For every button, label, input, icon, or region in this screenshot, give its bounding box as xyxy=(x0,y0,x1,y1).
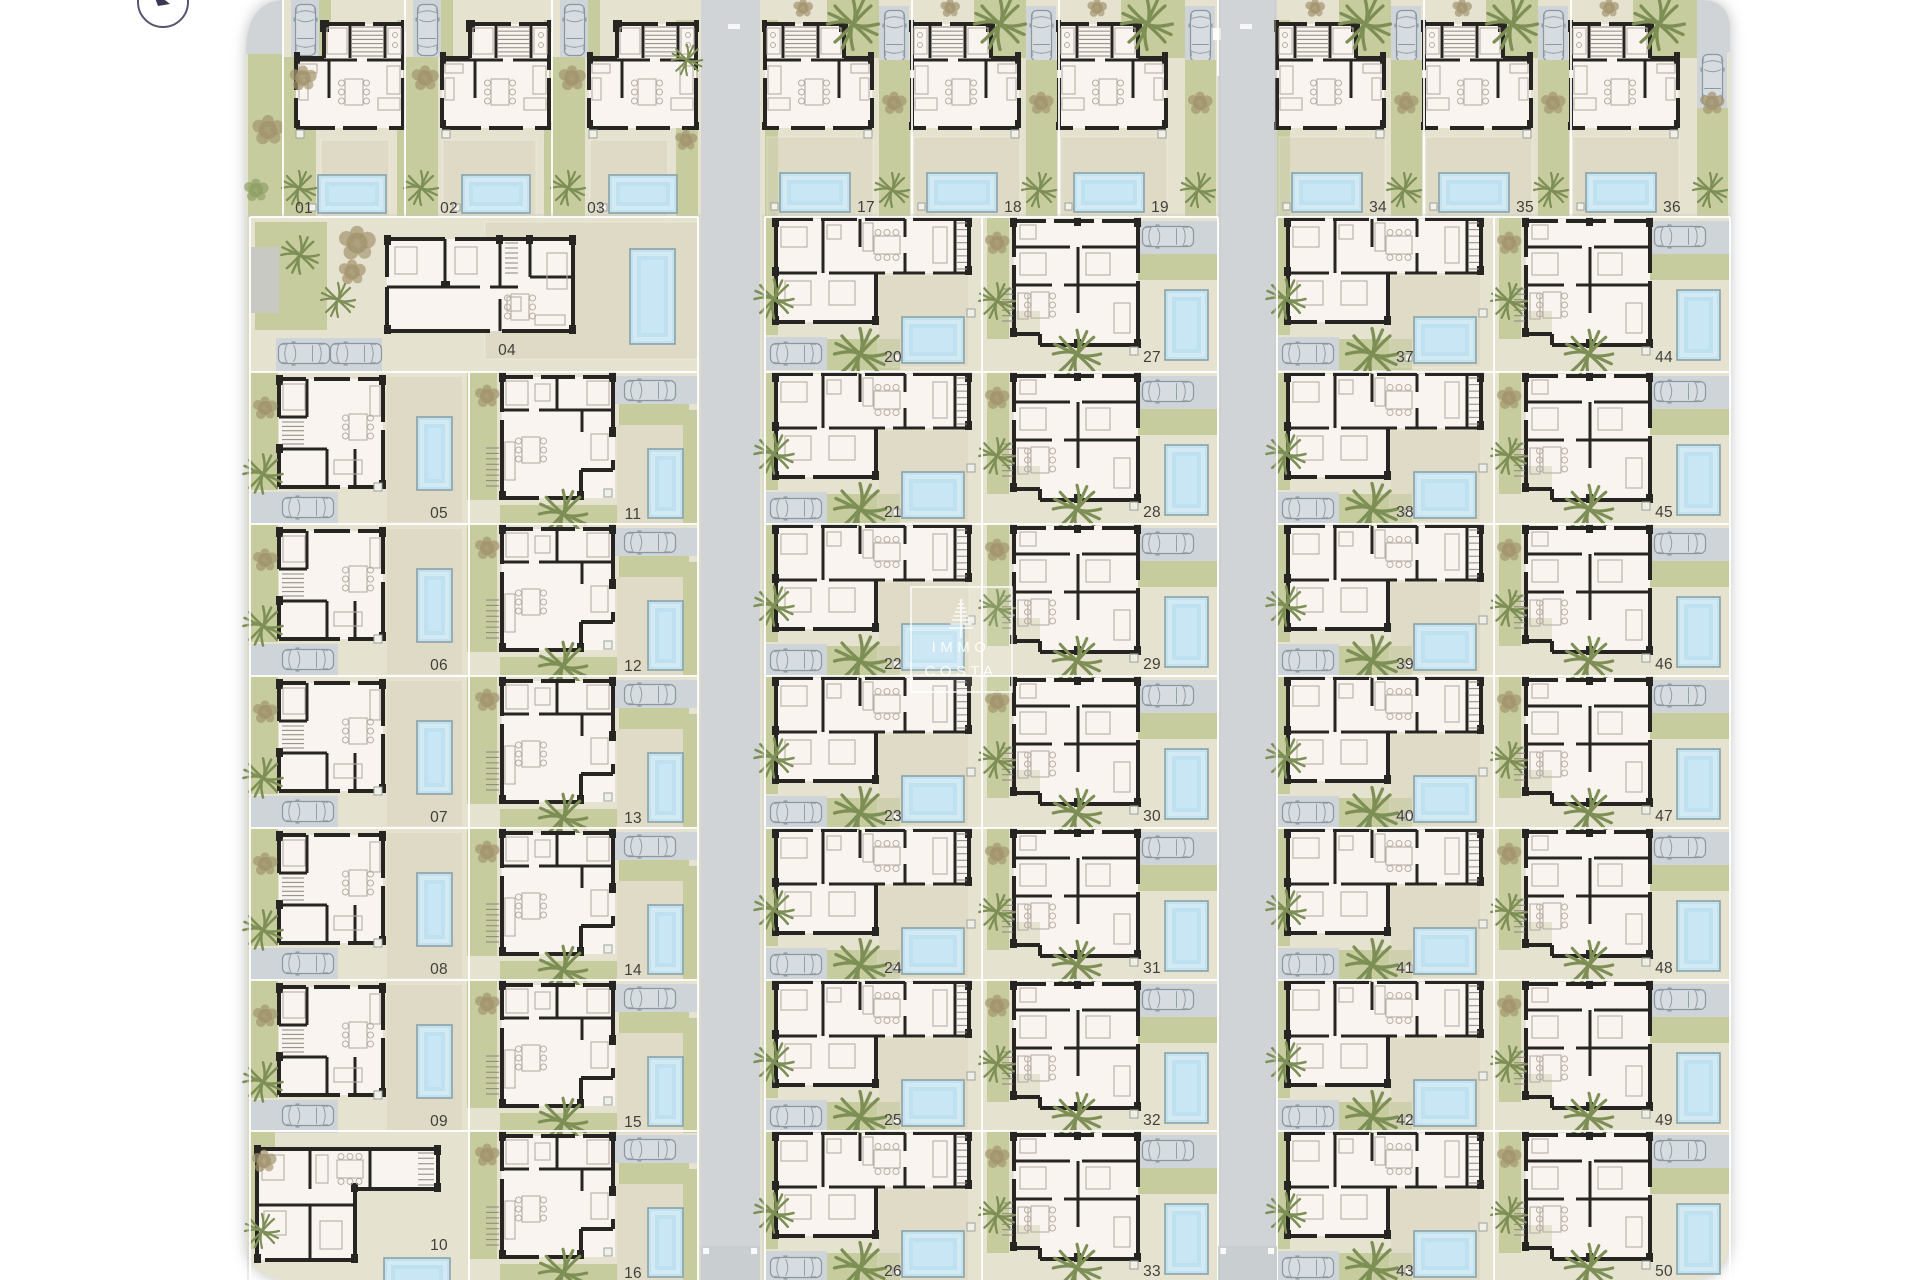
svg-text:21: 21 xyxy=(884,504,902,521)
svg-text:40: 40 xyxy=(1396,808,1414,825)
svg-text:39: 39 xyxy=(1396,656,1414,673)
svg-text:44: 44 xyxy=(1655,349,1673,366)
svg-text:IMMO: IMMO xyxy=(932,639,991,656)
svg-text:11: 11 xyxy=(625,506,642,523)
svg-text:19: 19 xyxy=(1151,199,1169,216)
svg-text:33: 33 xyxy=(1143,1263,1161,1280)
svg-text:04: 04 xyxy=(498,342,516,359)
svg-text:23: 23 xyxy=(884,808,902,825)
svg-text:01: 01 xyxy=(295,200,313,217)
svg-text:42: 42 xyxy=(1396,1112,1414,1129)
svg-text:49: 49 xyxy=(1655,1112,1673,1129)
svg-text:03: 03 xyxy=(587,200,605,217)
svg-text:COSTA: COSTA xyxy=(924,663,997,680)
svg-text:25: 25 xyxy=(884,1112,902,1129)
svg-text:09: 09 xyxy=(430,1113,448,1130)
svg-text:14: 14 xyxy=(624,962,642,979)
svg-text:26: 26 xyxy=(884,1263,902,1280)
svg-text:15: 15 xyxy=(624,1114,642,1131)
svg-text:17: 17 xyxy=(857,199,875,216)
svg-text:50: 50 xyxy=(1655,1263,1673,1280)
svg-text:31: 31 xyxy=(1143,960,1161,977)
svg-text:28: 28 xyxy=(1143,504,1161,521)
svg-text:30: 30 xyxy=(1143,808,1161,825)
svg-text:12: 12 xyxy=(624,658,642,675)
svg-text:13: 13 xyxy=(624,810,642,827)
svg-text:38: 38 xyxy=(1396,504,1414,521)
svg-text:08: 08 xyxy=(430,961,448,978)
svg-text:45: 45 xyxy=(1655,504,1673,521)
svg-text:18: 18 xyxy=(1004,199,1022,216)
svg-text:46: 46 xyxy=(1655,656,1673,673)
svg-text:10: 10 xyxy=(430,1237,448,1254)
svg-text:16: 16 xyxy=(624,1265,642,1280)
svg-text:37: 37 xyxy=(1396,349,1414,366)
svg-text:34: 34 xyxy=(1369,199,1387,216)
svg-text:43: 43 xyxy=(1396,1263,1414,1280)
svg-text:05: 05 xyxy=(430,505,448,522)
svg-text:47: 47 xyxy=(1655,808,1673,825)
svg-text:07: 07 xyxy=(430,809,448,826)
svg-text:35: 35 xyxy=(1516,199,1534,216)
svg-text:36: 36 xyxy=(1663,199,1681,216)
svg-text:41: 41 xyxy=(1396,960,1414,977)
svg-text:48: 48 xyxy=(1655,960,1673,977)
svg-text:06: 06 xyxy=(430,657,448,674)
svg-text:27: 27 xyxy=(1143,349,1161,366)
svg-text:29: 29 xyxy=(1143,656,1161,673)
svg-text:24: 24 xyxy=(884,960,902,977)
svg-text:22: 22 xyxy=(884,656,902,673)
svg-text:02: 02 xyxy=(440,200,458,217)
svg-text:20: 20 xyxy=(884,349,902,366)
svg-text:32: 32 xyxy=(1143,1112,1161,1129)
